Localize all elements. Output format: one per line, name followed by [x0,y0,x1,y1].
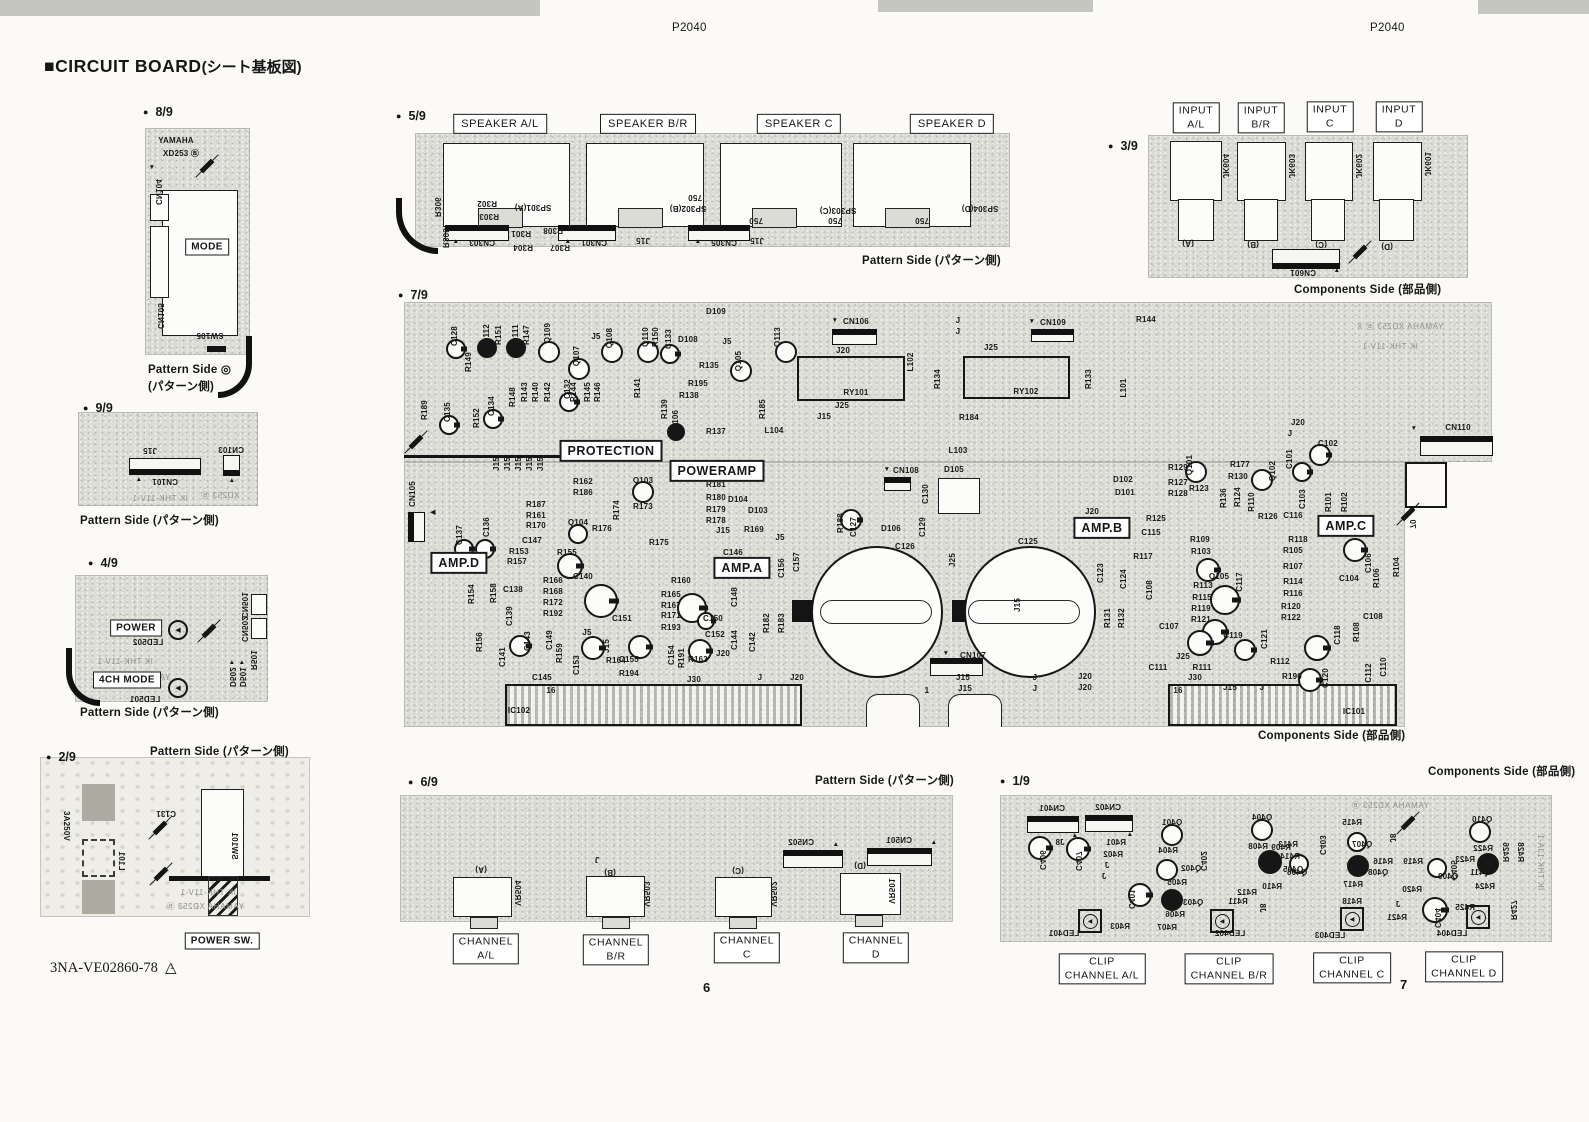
part-label: J5 [722,338,731,346]
part-label: R110 [1248,492,1256,511]
part-label: C123 [1097,563,1105,583]
board-corner-trace [396,198,438,254]
header-model-number-left: P2040 [672,22,707,34]
part-label: C147 [522,537,542,545]
part-label: R194 [619,670,639,678]
part-label: C129 [919,517,927,537]
part-label: J5 [591,333,600,341]
connector [1027,816,1079,833]
board-index-bullet: ●9/9 [83,401,113,415]
part-label: R144 [1136,316,1156,324]
part-label: R187 [526,501,546,509]
part-label: J20 [1291,419,1305,427]
ref-label-line: CLIP [1319,954,1385,968]
part-label: Q103 [633,477,653,485]
header-model-number-right: P2040 [1370,22,1405,34]
part-label: CN601 [1290,268,1316,276]
part-label: C140 [573,573,593,581]
part-label: C404 [1433,908,1441,928]
board-cutout [1373,142,1422,201]
part-label: (C) [732,866,744,874]
part-label: R412 [1237,889,1257,897]
part-label: R426 [1501,842,1509,862]
part-label: CN501 [886,837,912,845]
connector [884,477,911,491]
part-label: R417 [1343,881,1363,889]
part-label: R177 [1230,461,1250,469]
part-label: LED404 [1437,930,1468,938]
ref-label-box: POWERAMP [670,460,765,482]
ref-label-box: PROTECTION [560,440,663,462]
part-label: LED501 [130,696,161,704]
part-label: R421 [1387,914,1407,922]
marker-triangle-icon: ▲ [565,239,572,246]
part-label: R304 [513,243,533,251]
part-label: R424 [1475,883,1495,891]
capacitor-polarity-bar [1084,847,1091,852]
bullet-dot-icon: ● [408,777,413,787]
part-label: R165 [661,591,681,599]
part-label: R179 [706,506,726,514]
ref-label-line: C [1313,117,1348,131]
capacitor-top [820,600,932,624]
led-indicator-icon: ◀ [168,678,188,698]
capacitor-circle [1251,819,1273,841]
connector [1085,815,1133,832]
capacitor-polarity-bar [1361,548,1368,553]
part-label: LED401 [1049,930,1080,938]
part-label: C149 [546,630,554,650]
part-label: J25 [1176,653,1190,661]
part-label: C141 [499,647,507,667]
part-label: C102 [1318,440,1338,448]
capacitor-polarity-bar [675,352,681,357]
part-label: R121 [1191,616,1211,624]
part-label: R404 [1158,847,1178,855]
led-indicator-icon: ◀ [1340,907,1364,931]
side-caption: Pattern Side (パターン側) [815,772,954,788]
board-cutout [1305,142,1353,201]
capacitor-circle [1304,635,1330,661]
ref-label-line: A/L [459,949,513,963]
part-label: YAMAHA [158,137,194,145]
part-label: R116 [1283,590,1302,598]
part-label: J [595,855,600,863]
part-label: R178 [706,517,726,525]
board-cutout [1311,199,1345,241]
part-label: C131 [156,809,176,817]
ref-label-box: CLIPCHANNEL A/L [1059,953,1146,984]
part-label: D101 [1115,489,1135,497]
scan-artifact [0,0,540,16]
part-label: CN502 [788,839,814,847]
part-label: (D) [1381,242,1393,250]
part-label: C104 [1339,575,1359,583]
transistor-dot [1347,855,1369,877]
part-label: J15 [636,236,650,244]
part-label: C124 [1120,569,1128,589]
part-label: R149 [465,352,473,372]
ref-label-box: CLIPCHANNEL C [1313,952,1391,983]
led-circle-icon: ◀ [1083,914,1098,929]
part-label: SP303(C) [820,206,857,214]
ref-label-line: AMP.D [438,555,479,571]
board-index-label: 2/9 [58,750,75,764]
part-label: R302 [477,199,497,207]
part-label: J30 [687,676,701,684]
part-label: C108 [1363,613,1383,621]
marker-triangle-icon: ▼ [149,165,156,172]
side-caption: Components Side (部品側) [1428,763,1575,779]
part-label: Q410 [1472,816,1492,824]
transistor-dot [1161,889,1183,911]
board-cutout [1379,199,1414,241]
ref-label-box: SPEAKER A/L [453,114,547,134]
part-label: C142 [749,632,757,652]
part-label: J [1105,862,1110,870]
ref-label-line: AMP.B [1081,520,1122,536]
part-label: C143 [524,631,532,651]
part-label: R155 [557,549,577,557]
ref-label-line: SPEAKER A/L [461,117,539,131]
part-label: R407 [1157,924,1177,932]
part-label: (D) [854,861,866,869]
part-label: L104 [764,427,783,435]
scan-artifact [1478,0,1589,14]
ref-label-line: AMP.A [721,560,762,576]
part-label: R118 [1288,536,1307,544]
ref-label-box: AMP.C [1317,515,1374,537]
part-label: R109 [1190,536,1210,544]
part-label: R180 [706,494,726,502]
ref-label-line: POWERAMP [678,463,757,479]
part-label: C401 [1127,889,1135,909]
part-label: 750 [915,216,929,224]
part-label: R181 [706,481,726,489]
relay-outline [1405,462,1447,508]
part-label: R171 [661,612,681,620]
part-label: D108 [678,336,698,344]
capacitor-circle [538,341,560,363]
part-label: C403 [1318,835,1326,855]
part-label: VR504 [513,880,521,905]
board-index-label: 4/9 [100,556,117,570]
capacitor-polarity-bar [1307,470,1313,475]
part-label: J15 [537,457,545,471]
ref-label-box: POWER [110,620,162,637]
part-label: C130 [922,484,930,504]
part-label: J20 [1085,508,1099,516]
part-label: CN103 [218,447,244,455]
service-manual-circuit-board-page: P2040 P2040 ■CIRCUIT BOARD(シート基板図) 3NA-V… [0,0,1589,1122]
part-label: R164 [606,657,626,665]
part-label: R147 [523,325,531,345]
page-number-left: 6 [703,980,710,995]
part-label: R166 [543,577,563,585]
board-cutout [715,877,772,917]
part-label: C154 [668,645,676,665]
part-label: R133 [1085,369,1093,389]
part-label: SP302(B) [670,204,707,212]
part-label: 750 [749,216,763,224]
part-label: XD253 Ⓑ [163,150,199,158]
part-label: J25 [835,402,849,410]
part-label: J25 [949,553,957,567]
part-label: 16 [546,687,555,695]
ref-label-line: INPUT [1244,104,1279,118]
capacitor-polarity-bar [490,547,496,552]
board-index-label: 6/9 [420,775,437,789]
capacitor-circle [1234,639,1256,661]
part-label: 3A250V [62,811,70,841]
part-label: R114 [1283,578,1302,586]
ref-label-line: CHANNEL A/L [1065,969,1140,983]
ref-label-line: SPEAKER D [918,117,986,131]
part-label: SW105 [196,331,223,339]
part-label: R143 [521,382,529,402]
part-label: 1 [925,687,930,695]
part-label: R174 [613,500,621,520]
part-label: (B) [1247,240,1259,248]
ref-label-line: B/R [1244,118,1279,132]
capacitor-circle [568,524,588,544]
part-label: C128 [451,326,459,346]
capacitor-circle [1187,630,1213,656]
part-label: CN402 [1095,804,1121,812]
marker-triangle-icon: ▲ [695,239,702,246]
part-label: YAMAHA XD253 Ⓑ X [1357,323,1444,331]
part-label: R127 [1168,479,1188,487]
part-label: R185 [759,399,767,419]
part-label: Q111 [512,324,520,344]
part-label: (A) [475,865,487,873]
ref-label-box: CLIPCHANNEL D [1425,951,1503,982]
connector [1420,436,1493,456]
part-label: R156 [476,632,484,652]
ref-label-line: CLIP [1065,955,1140,969]
part-label: C107 [1159,623,1179,631]
part-label: C156 [778,558,786,578]
part-label: C148 [731,587,739,607]
part-label: VR502 [769,881,777,906]
board-cutout [1237,142,1286,201]
part-label: IK THK-11V-1 [97,658,153,666]
page-number-right: 7 [1400,977,1407,992]
led-circle-icon: ◀ [1215,914,1230,929]
part-label: J15 [603,639,611,653]
part-label: R305 [441,228,449,248]
part-label: J8 [1258,903,1266,912]
ref-label-box: CHANNELD [843,932,909,963]
ref-label-box: AMP.D [430,552,487,574]
connector [832,329,877,345]
part-label: J [1396,901,1401,909]
part-label: R105 [1283,547,1303,555]
bullet-dot-icon: ● [398,290,403,300]
ref-label-box: CHANNELA/L [453,933,519,964]
part-label: R142 [544,382,552,402]
part-label: J20 [836,347,850,355]
part-label: R419 [1403,858,1423,866]
capacitor-polarity-bar [1146,893,1153,898]
part-label: CN501 [240,592,248,618]
part-label: J [1260,684,1265,692]
part-label: JK601 [1423,152,1431,177]
part-label: R123 [1189,485,1209,493]
part-label: R160 [671,577,691,585]
ref-label-box: POWER SW. [185,933,260,950]
part-label: R189 [421,400,429,420]
part-label: VR503 [642,881,650,906]
part-label: L103 [948,447,967,455]
part-label: JK603 [1287,154,1295,179]
part-label: RY102 [1013,388,1038,396]
part-label: J25 [984,344,998,352]
warning-triangle-icon: △1 [165,959,177,976]
part-label: R303 [479,212,499,220]
ref-label-box: CHANNELB/R [583,934,649,965]
part-label: R144 [570,382,578,402]
part-label: J [1033,674,1038,682]
part-label: R132 [1118,608,1126,628]
part-label: J20 [1078,673,1092,681]
transistor-dot [1258,850,1282,874]
capacitor-circle [584,584,618,618]
part-label: R405 [1167,879,1187,887]
part-label: R120 [1281,603,1301,611]
board-cutout [453,877,512,917]
part-label: D502 [228,667,236,687]
board-index-bullet: ●3/9 [1108,139,1138,153]
part-label: CN106 [843,318,869,326]
part-label: CN303 [469,238,495,246]
part-label: LED402 [1215,930,1246,938]
side-caption: Components Side (部品側) [1294,281,1441,297]
connector [867,848,932,866]
part-label: R420 [1402,886,1422,894]
part-label: C136 [483,517,491,537]
part-label: R151 [495,325,503,345]
part-label: C110 [1380,657,1388,676]
ref-label-box: SPEAKER C [757,114,841,134]
part-label: R159 [556,643,564,663]
part-label: R410 [1262,883,1282,891]
marker-triangle-icon: ▼ [943,651,950,658]
part-label: C157 [793,552,801,572]
marker-triangle-icon: ▲ [229,660,236,667]
part-label: C137 [456,525,464,545]
part-label: R501 [249,650,257,670]
ref-label-line: POWER [116,622,156,635]
part-label: R145 [584,382,592,402]
part-label: R193 [661,624,681,632]
part-label: Q101 [1186,455,1194,475]
part-label: L101 [1120,378,1128,397]
part-label: R126 [1258,513,1278,521]
connector [783,850,843,868]
part-label: L101 [117,851,125,870]
part-label: R413 [1278,841,1298,849]
part-label: R111 [1192,664,1211,672]
capacitor-circle [1161,824,1183,846]
capacitor-polarity-bar [454,423,460,428]
marker-triangle-icon: ▲ [931,840,938,847]
part-label: R106 [1373,568,1381,588]
part-label: J15 [1223,684,1237,692]
ref-label-box: CLIPCHANNEL B/R [1185,953,1274,984]
part-label: IK THK-11V-1 [180,889,236,897]
part-label: Q107 [573,346,581,366]
capacitor-polarity-bar [1323,646,1331,651]
board-pad [618,208,663,228]
marker-triangle-icon: ▲ [239,660,246,667]
capacitor-polarity-bar [1232,598,1241,603]
ref-label-line: INPUT [1179,104,1214,118]
ref-label-line: CHANNEL C [1319,968,1385,982]
part-label: J15 [958,685,972,693]
part-label: R131 [1104,608,1112,628]
capacitor-top [968,600,1080,624]
part-label: J [758,674,763,682]
part-label: CN110 [1445,424,1470,432]
part-label: CN502 [240,616,248,642]
part-label: C120 [1322,668,1330,688]
part-label: R423 [1455,856,1475,864]
part-label: R182 [763,613,771,633]
part-label: R152 [473,408,481,428]
part-label: R117 [1133,553,1152,561]
board-cutout [251,618,267,639]
part-label: J15 [493,457,501,471]
capacitor-circle [1292,462,1312,482]
part-label: R169 [744,526,764,534]
ref-label-line: INPUT [1382,103,1417,117]
part-label: R175 [649,539,669,547]
part-label: J [956,317,961,325]
board-index-label: 9/9 [95,401,112,415]
part-label: R139 [661,399,669,419]
board-index-label: 7/9 [410,288,427,302]
side-caption: (パターン側) [148,378,214,394]
ref-label-box: INPUTD [1376,101,1423,132]
part-label: R140 [532,382,540,402]
ref-label-box: INPUTB/R [1238,102,1285,133]
part-label: R167 [661,602,681,610]
part-label: J15 [716,527,730,535]
part-label: J15 [1014,598,1022,612]
part-label: R136 [1220,488,1228,508]
part-label: C117 [1236,572,1244,591]
part-label: R161 [526,512,546,520]
part-label: Q106 [672,410,680,430]
ref-label-line: INPUT [1313,103,1348,117]
capacitor-polarity-bar [1251,648,1257,653]
part-label: R191 [678,648,686,668]
led-circle-icon: ◀ [1345,912,1360,927]
part-label: C135 [444,402,452,422]
part-label: 750 [688,193,702,201]
part-label: R403 [1110,923,1130,931]
part-label: R122 [1281,614,1301,622]
side-caption: Pattern Side (パターン側) [80,704,219,720]
ref-label-line: CHANNEL [589,936,643,950]
ref-label-box: MODE [185,239,229,256]
part-label: D106 [881,525,901,533]
part-label: CN301 [581,238,607,246]
part-label: J15 [956,674,970,682]
part-label: R112 [1270,658,1289,666]
part-label: C133 [665,329,673,349]
